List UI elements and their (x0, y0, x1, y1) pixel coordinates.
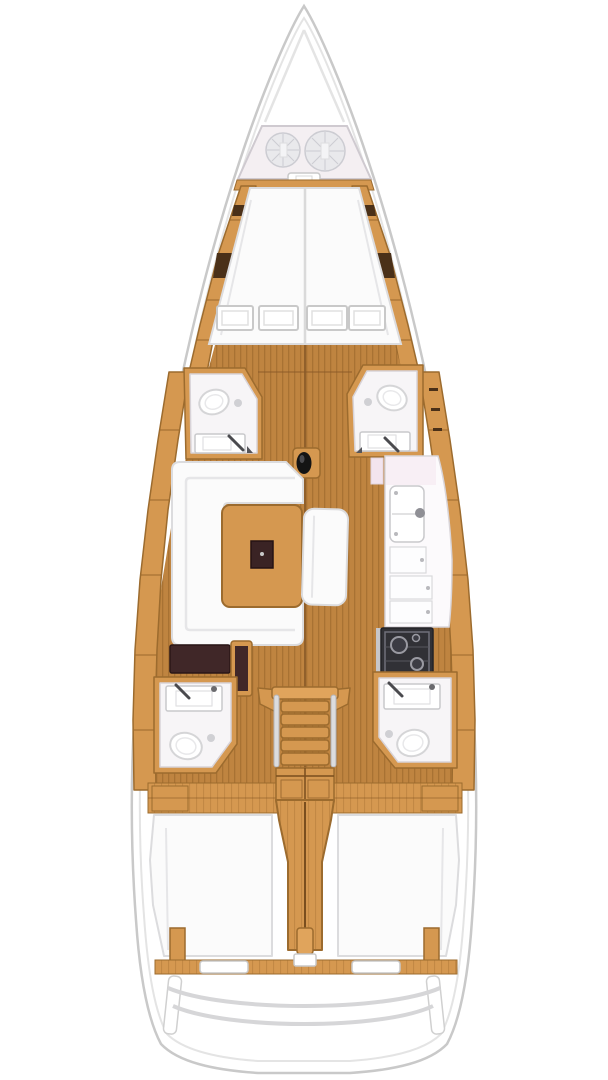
handrail-port (274, 695, 279, 767)
burner-small (411, 658, 423, 670)
starboard-aft-sink (384, 683, 440, 709)
galley-door-panel (371, 458, 383, 484)
step-locker (276, 768, 334, 802)
double-sink (390, 486, 425, 542)
yacht-floorplan (0, 0, 608, 1080)
transom-latch-center (294, 954, 316, 966)
handrail-starboard (331, 695, 336, 767)
locker-doors (390, 547, 432, 623)
steps (281, 701, 329, 765)
port-aft-sink (166, 685, 222, 711)
chart-table (170, 645, 230, 673)
starboard-forward-sink (356, 432, 410, 453)
burner-large (391, 637, 407, 653)
floorplan-drawing (0, 0, 608, 1080)
port-forward-sink (195, 434, 253, 453)
top-step (272, 687, 338, 699)
mast-foot (297, 452, 312, 474)
stern-post-starboard (424, 928, 439, 962)
burner-knob (413, 635, 420, 642)
rope-coil-small (266, 133, 300, 167)
faucet (415, 508, 425, 518)
mast-highlight (300, 455, 305, 463)
rope-coil-large (305, 131, 345, 171)
stern-post-port (170, 928, 185, 962)
table-inlay-dot (260, 552, 264, 556)
center-bench (302, 508, 348, 605)
column-foot (297, 928, 313, 954)
transom-locker-starboard (352, 961, 400, 973)
transom-locker-port (200, 961, 248, 973)
counter-top-zone (386, 457, 436, 485)
